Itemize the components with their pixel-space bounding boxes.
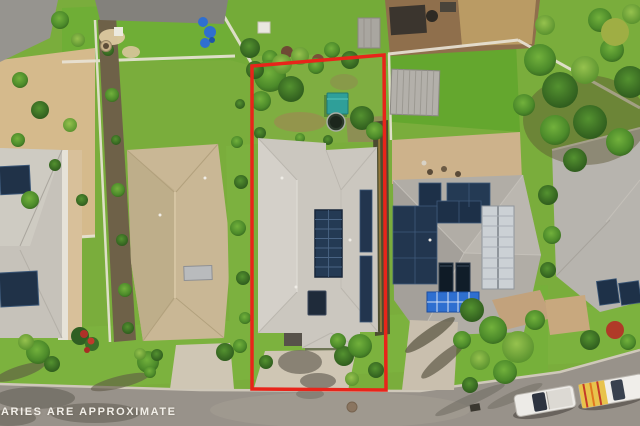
top-roof — [95, 0, 228, 24]
left-house-skylight — [184, 266, 212, 281]
aerial-photo — [0, 0, 640, 426]
dry-grass-patch — [458, 0, 536, 46]
garage-shadow — [284, 333, 302, 346]
neighbor-shed — [358, 18, 380, 48]
aerial-screenshot: ARIES ARE APPROXIMATE — [0, 0, 640, 426]
neighbor-structure — [258, 22, 270, 33]
red-flower-bush — [80, 330, 88, 338]
subject-skylight — [308, 291, 326, 315]
subject-solar-array — [315, 210, 342, 277]
garden-shed — [390, 69, 440, 116]
left-house — [127, 144, 231, 341]
storage-shed — [327, 93, 348, 114]
far-left-house — [0, 148, 82, 340]
right-white-panels — [482, 206, 514, 289]
manhole-cover — [347, 402, 357, 412]
subject-house — [258, 138, 378, 353]
subject-edge-panels — [360, 190, 372, 322]
watermark-text: ARIES ARE APPROXIMATE — [1, 406, 177, 418]
patio-pad — [114, 27, 123, 36]
